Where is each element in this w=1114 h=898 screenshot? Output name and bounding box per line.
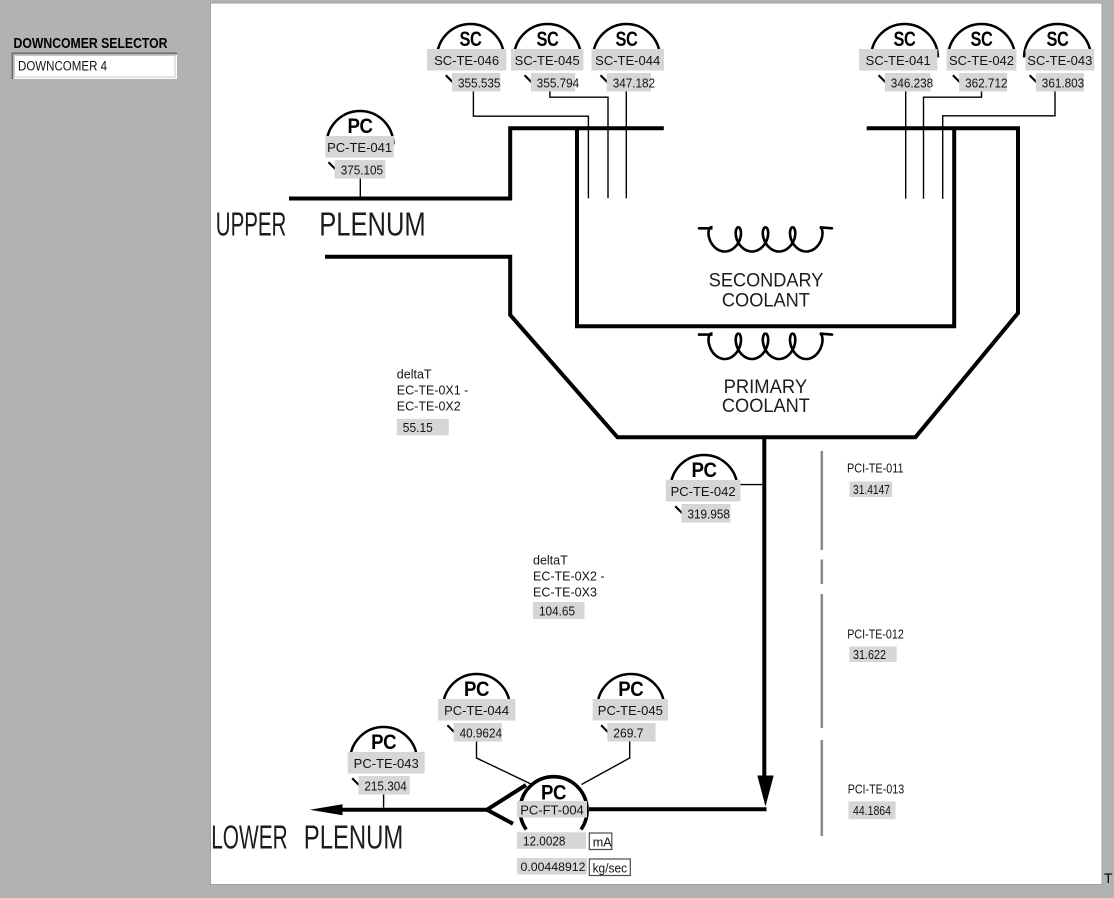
svg-text:269.7: 269.7: [613, 725, 643, 740]
svg-text:SC-TE-045: SC-TE-045: [515, 53, 580, 68]
svg-text:EC-TE-0X2 -: EC-TE-0X2 -: [533, 570, 605, 584]
svg-text:PCI-TE-013: PCI-TE-013: [848, 783, 905, 797]
svg-text:SC: SC: [1047, 28, 1069, 51]
svg-text:361.803: 361.803: [1042, 75, 1084, 90]
svg-text:kg/sec: kg/sec: [593, 861, 628, 875]
svg-text:PC: PC: [371, 731, 396, 754]
svg-text:deltaT: deltaT: [533, 554, 568, 568]
svg-text:355.535: 355.535: [458, 75, 500, 90]
svg-text:PC-TE-042: PC-TE-042: [671, 484, 736, 499]
svg-text:PC-TE-044: PC-TE-044: [444, 703, 509, 718]
svg-text:SC-TE-042: SC-TE-042: [949, 53, 1014, 68]
svg-text:31.4147: 31.4147: [853, 482, 890, 497]
svg-text:mA: mA: [593, 835, 612, 849]
svg-text:104.65: 104.65: [539, 604, 575, 619]
svg-text:319.958: 319.958: [688, 506, 730, 521]
svg-text:PC-TE-045: PC-TE-045: [598, 703, 663, 718]
svg-text:PCI-TE-011: PCI-TE-011: [847, 462, 904, 476]
svg-text:346.238: 346.238: [891, 75, 933, 90]
svg-text:PLENUM: PLENUM: [304, 819, 404, 856]
svg-text:SC-TE-043: SC-TE-043: [1027, 53, 1092, 68]
svg-text:SC-TE-041: SC-TE-041: [866, 53, 931, 68]
svg-text:PC: PC: [618, 678, 643, 701]
svg-text:T: T: [1104, 870, 1113, 886]
svg-text:SECONDARY: SECONDARY: [709, 270, 824, 292]
svg-text:PCI-TE-012: PCI-TE-012: [847, 628, 904, 642]
svg-text:40.9624: 40.9624: [460, 725, 502, 740]
svg-text:SC: SC: [616, 28, 638, 51]
svg-text:347.182: 347.182: [613, 75, 655, 90]
svg-text:55.15: 55.15: [403, 420, 433, 435]
svg-text:12.0028: 12.0028: [523, 834, 565, 849]
svg-text:31.622: 31.622: [853, 647, 886, 662]
svg-text:UPPER: UPPER: [216, 206, 286, 243]
svg-text:COOLANT: COOLANT: [722, 290, 810, 312]
svg-text:DOWNCOMER 4: DOWNCOMER 4: [18, 59, 107, 74]
svg-text:PC-FT-004: PC-FT-004: [520, 802, 584, 817]
svg-text:PC: PC: [692, 459, 717, 482]
svg-text:PC-TE-041: PC-TE-041: [327, 140, 392, 155]
svg-text:44.1864: 44.1864: [853, 803, 891, 818]
svg-text:SC-TE-046: SC-TE-046: [434, 53, 499, 68]
svg-text:EC-TE-0X2: EC-TE-0X2: [397, 400, 461, 414]
svg-text:SC: SC: [971, 28, 993, 51]
svg-text:COOLANT: COOLANT: [722, 395, 810, 417]
svg-text:LOWER: LOWER: [211, 819, 288, 856]
svg-text:375.105: 375.105: [341, 162, 383, 177]
svg-text:SC: SC: [460, 28, 482, 51]
svg-text:PC: PC: [348, 115, 373, 138]
svg-text:215.304: 215.304: [364, 778, 406, 793]
svg-text:0.00448912: 0.00448912: [521, 860, 586, 874]
svg-text:PC: PC: [464, 678, 489, 701]
svg-text:EC-TE-0X3: EC-TE-0X3: [533, 586, 597, 600]
svg-text:SC-TE-044: SC-TE-044: [595, 53, 660, 68]
svg-text:362.712: 362.712: [965, 75, 1007, 90]
svg-text:EC-TE-0X1 -: EC-TE-0X1 -: [397, 384, 469, 398]
svg-text:deltaT: deltaT: [397, 368, 432, 382]
svg-text:SC: SC: [537, 28, 559, 51]
svg-text:DOWNCOMER SELECTOR: DOWNCOMER SELECTOR: [14, 35, 168, 52]
svg-text:PLENUM: PLENUM: [319, 206, 426, 243]
svg-text:SC: SC: [894, 28, 916, 51]
svg-text:PC-TE-043: PC-TE-043: [354, 756, 419, 771]
svg-text:355.794: 355.794: [537, 75, 579, 90]
